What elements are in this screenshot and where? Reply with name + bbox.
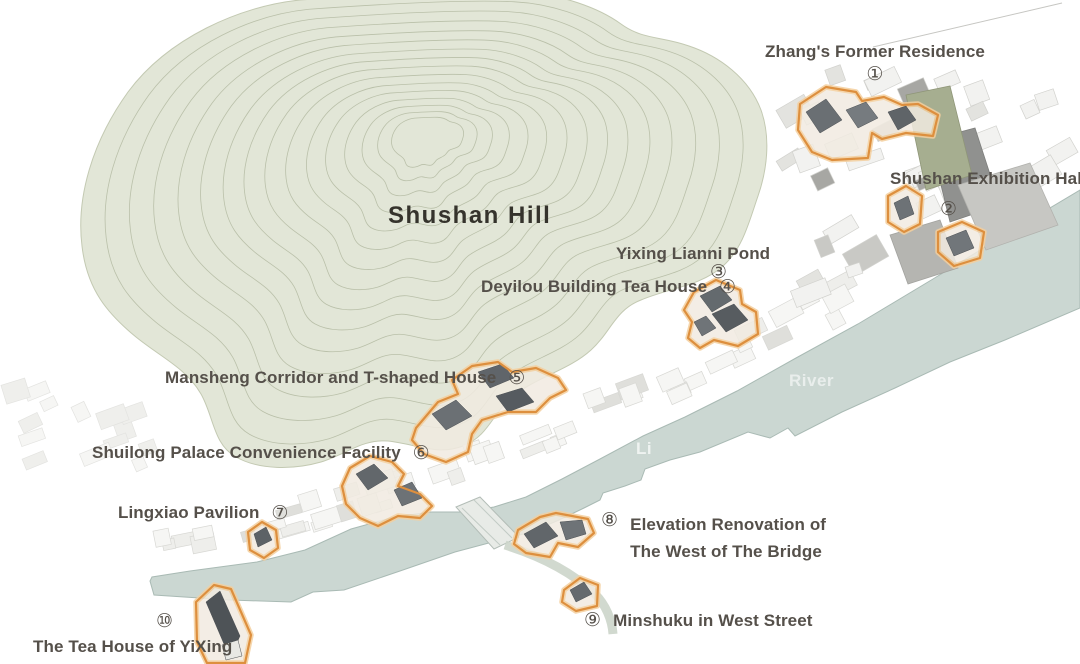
site-3-4-highlight — [684, 280, 758, 348]
village-building — [40, 396, 58, 412]
village-building — [553, 421, 576, 440]
site-2-highlight-b — [938, 222, 984, 266]
village-buildings-west — [1, 378, 158, 472]
village-building — [138, 439, 158, 457]
site-plan-canvas: Shushan Hill Li River Zhang's Former Res… — [0, 0, 1080, 664]
village-building — [825, 308, 846, 330]
village-building — [22, 451, 47, 470]
village-building — [1034, 89, 1058, 111]
shushan-hill — [81, 0, 767, 467]
village-building — [705, 350, 737, 374]
site-7-highlight — [248, 522, 278, 558]
village-building — [79, 442, 113, 466]
village-building — [864, 66, 901, 96]
village-building — [825, 65, 846, 86]
site-9-highlight — [562, 578, 598, 611]
village-building — [275, 504, 302, 520]
leader-line — [873, 3, 1062, 47]
village-building — [964, 80, 990, 106]
village-building — [845, 262, 863, 277]
site-2-highlight-a — [888, 186, 922, 232]
village-building — [153, 528, 171, 547]
village-building — [811, 168, 835, 191]
site-plan-artwork — [0, 0, 1080, 664]
site-6-highlight-halo — [342, 456, 432, 526]
village-building — [1, 378, 30, 404]
site-6-highlight — [342, 456, 432, 526]
village-building — [966, 101, 988, 121]
hill-outline — [81, 0, 767, 467]
village-building — [71, 401, 91, 422]
village-building — [132, 456, 148, 472]
